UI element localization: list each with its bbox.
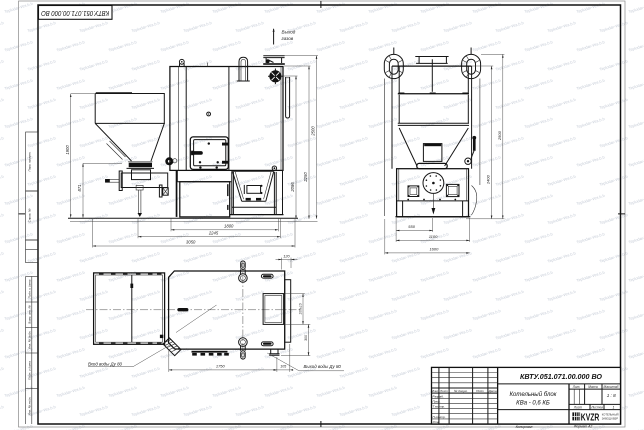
svg-text:Разраб.: Разраб. [433, 394, 444, 398]
svg-text:2500: 2500 [311, 126, 316, 137]
svg-text:Котельный блок: Котельный блок [509, 391, 557, 398]
svg-text:Масштаб: Масштаб [604, 385, 619, 389]
svg-text:300: 300 [304, 335, 308, 341]
svg-text:Лит.: Лит. [572, 385, 581, 389]
svg-text:Лист: Лист [573, 406, 583, 410]
svg-text:550: 550 [408, 224, 415, 229]
svg-text:1750: 1750 [216, 364, 226, 369]
svg-text:газов: газов [282, 36, 294, 41]
svg-text:КОТЕЛЬНЫЙ: КОТЕЛЬНЫЙ [602, 413, 619, 417]
svg-text:Формат А2: Формат А2 [574, 425, 593, 429]
svg-text:КВТУ.051.071.00.000 ВО: КВТУ.051.071.00.000 ВО [520, 373, 602, 381]
svg-text:Инв. № подл.: Инв. № подл. [28, 397, 32, 416]
svg-text:№ докум.: № докум. [454, 389, 468, 393]
svg-text:1 : 8: 1 : 8 [607, 393, 616, 398]
svg-text:105: 105 [280, 365, 286, 369]
svg-text:Копировал: Копировал [516, 425, 533, 429]
svg-text:2400: 2400 [486, 174, 491, 185]
svg-text:KVZR: KVZR [581, 412, 600, 423]
svg-text:Взам. инв. №: Взам. инв. № [28, 304, 32, 323]
svg-text:Вход воды Ду 80: Вход воды Ду 80 [88, 361, 123, 366]
svg-text:Перв. примен.: Перв. примен. [28, 151, 32, 171]
svg-text:1100: 1100 [429, 234, 438, 239]
svg-text:КВТУ.051.071.00.000 ВО: КВТУ.051.071.00.000 ВО [41, 9, 109, 16]
svg-text:Справ. №: Справ. № [28, 208, 32, 222]
svg-text:2086: 2086 [290, 182, 295, 193]
svg-text:Утв.: Утв. [433, 420, 440, 424]
svg-text:Дата: Дата [488, 389, 497, 393]
svg-text:Выход: Выход [282, 30, 296, 35]
svg-text:1600: 1600 [429, 247, 439, 252]
svg-text:871: 871 [77, 185, 82, 192]
svg-text:Н.контр.: Н.контр. [433, 415, 446, 419]
svg-text:Инв. № дубл.: Инв. № дубл. [28, 331, 32, 350]
svg-text:Подп. и дата: Подп. и дата [28, 279, 32, 298]
svg-text:2250: 2250 [303, 172, 308, 183]
svg-text:Изм.: Изм. [432, 389, 439, 393]
svg-text:100±10: 100±10 [299, 303, 303, 314]
svg-text:2500: 2500 [497, 130, 502, 141]
svg-text:120: 120 [283, 255, 290, 259]
svg-text:Пров.: Пров. [433, 400, 441, 404]
svg-text:Масса: Масса [588, 385, 598, 389]
svg-text:3050: 3050 [186, 240, 196, 245]
svg-text:Листов: Листов [590, 406, 603, 410]
svg-text:1800: 1800 [224, 223, 234, 228]
svg-text:Лист: Лист [439, 389, 448, 393]
svg-text:2245: 2245 [208, 230, 219, 235]
svg-text:1: 1 [612, 405, 614, 409]
svg-text:Выход воды Ду 80: Выход воды Ду 80 [304, 364, 342, 369]
svg-text:Подп.: Подп. [476, 389, 484, 393]
svg-text:Подп. и дата: Подп. и дата [28, 361, 32, 380]
svg-text:Т.контр.: Т.контр. [433, 405, 446, 409]
svg-text:ЗАВОД КВЗР: ЗАВОД КВЗР [602, 416, 619, 420]
svg-text:1900: 1900 [65, 145, 70, 155]
svg-text:КВа - 0,6 КБ: КВа - 0,6 КБ [516, 401, 550, 407]
